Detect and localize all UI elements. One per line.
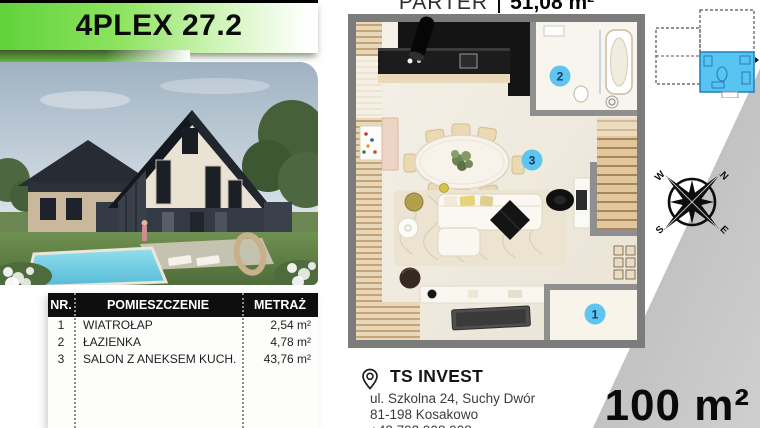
table-header-row: NR. POMIESZCZENIE METRAŻ <box>48 293 318 317</box>
location-pin-icon <box>358 367 382 391</box>
plan-badge-1: 1 <box>585 304 606 325</box>
floor-area-value: 51,08 m² <box>510 0 594 14</box>
room-nr: 3 <box>48 351 74 368</box>
table-row: 2 ŁAZIENKA 4,78 m² <box>48 334 318 351</box>
phone-number: +48 792 908 908 <box>370 423 535 428</box>
compass-west-label: W <box>653 169 668 184</box>
company-address: ul. Szkolna 24, Suchy Dwór 81-198 Kosako… <box>370 391 535 428</box>
table-row: 3 SALON Z ANEKSEM KUCH. 43,76 m² <box>48 351 318 368</box>
badge-number: 2 <box>557 70 564 84</box>
room-name: WIATROŁAP <box>74 317 242 334</box>
flyer-page: 4PLEX 27.2 <box>0 0 760 428</box>
floor-plan: 2 3 1 <box>348 14 645 348</box>
room-area: 2,54 m² <box>242 317 318 334</box>
title-banner: 4PLEX 27.2 <box>0 0 318 53</box>
floor-label: PARTER <box>399 0 488 14</box>
house-photo <box>0 62 318 285</box>
compass-icon: W N S E <box>650 158 734 242</box>
table-column-divider <box>74 293 76 428</box>
house-render-image <box>0 62 318 285</box>
room-name: ŁAZIENKA <box>74 334 242 351</box>
compass-south-label: S <box>654 224 667 237</box>
page-title: 4PLEX 27.2 <box>0 3 318 49</box>
plan-badge-3: 3 <box>522 150 543 171</box>
room-area: 4,78 m² <box>242 334 318 351</box>
compass-north-label: N <box>717 170 730 183</box>
room-nr: 2 <box>48 334 74 351</box>
badge-number: 1 <box>592 308 599 322</box>
site-plan-thumbnail <box>652 2 760 98</box>
company-name: TS INVEST <box>390 366 483 387</box>
total-area-label: 100 m² <box>605 381 750 428</box>
room-nr: 1 <box>48 317 74 334</box>
room-table: NR. POMIESZCZENIE METRAŻ 1 WIATROŁAP 2,5… <box>48 293 318 428</box>
col-header-nr: NR. <box>48 293 74 317</box>
room-name: SALON Z ANEKSEM KUCH. <box>74 351 242 368</box>
compass-east-label: E <box>718 224 731 237</box>
table-row: 1 WIATROŁAP 2,54 m² <box>48 317 318 334</box>
floor-plan-image: 2 3 1 <box>348 14 645 348</box>
badge-number: 3 <box>529 154 536 168</box>
address-line-2: 81-198 Kosakowo <box>370 407 535 423</box>
address-line-1: ul. Szkolna 24, Suchy Dwór <box>370 391 535 407</box>
header-divider <box>498 0 500 13</box>
room-area: 43,76 m² <box>242 351 318 368</box>
table-column-divider <box>242 293 244 428</box>
col-header-room: POMIESZCZENIE <box>74 293 242 317</box>
col-header-area: METRAŻ <box>242 293 318 317</box>
plan-badge-2: 2 <box>550 66 571 87</box>
